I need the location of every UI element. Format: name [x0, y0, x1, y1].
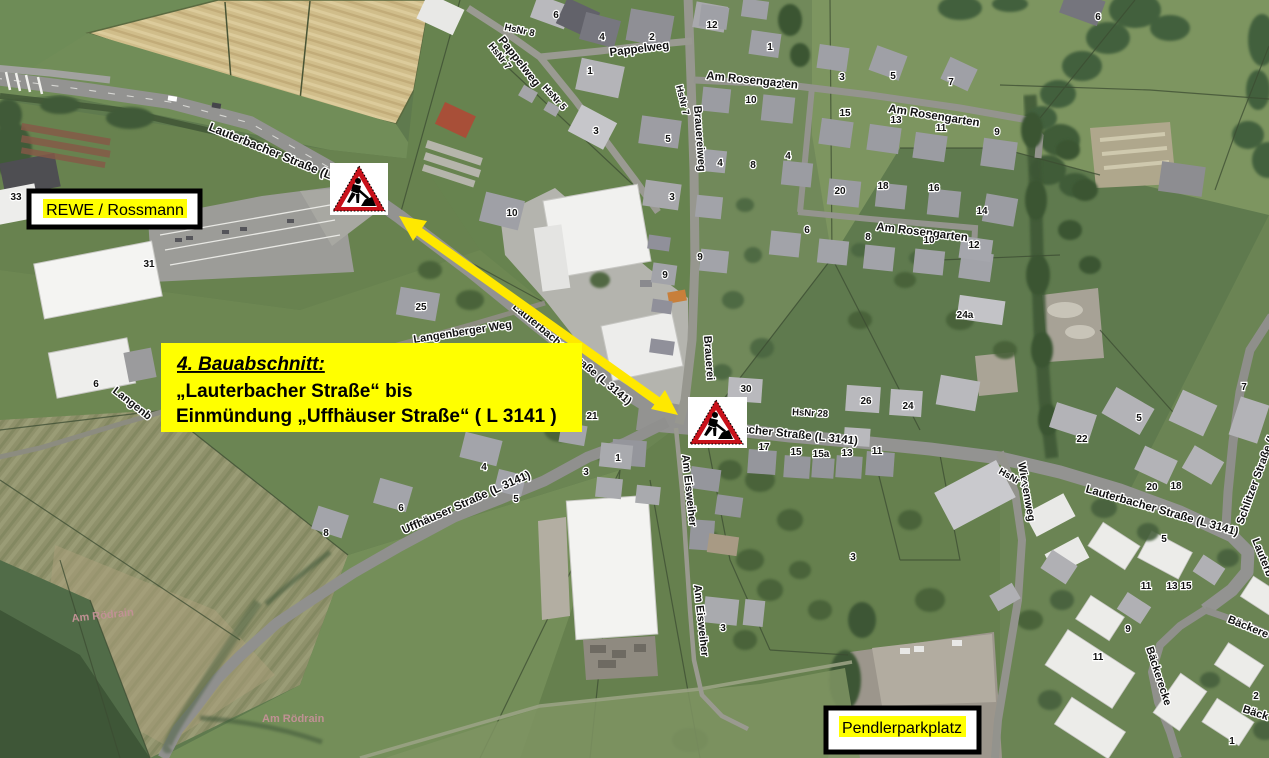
svg-text:17: 17 — [758, 442, 770, 453]
svg-text:24: 24 — [902, 401, 914, 412]
svg-text:18: 18 — [877, 181, 889, 192]
svg-text:REWE / Rossmann: REWE / Rossmann — [46, 202, 184, 219]
svg-text:13: 13 — [841, 448, 853, 459]
svg-text:15: 15 — [839, 108, 851, 119]
svg-text:11: 11 — [1141, 581, 1152, 592]
svg-text:„Lauterbacher Straße“ bis: „Lauterbacher Straße“ bis — [176, 381, 413, 402]
svg-text:16: 16 — [928, 183, 940, 194]
svg-text:9: 9 — [697, 252, 703, 263]
svg-text:22: 22 — [1076, 434, 1088, 445]
svg-text:13: 13 — [1166, 581, 1178, 592]
svg-text:6: 6 — [804, 225, 810, 236]
svg-text:1: 1 — [767, 42, 773, 53]
svg-text:30: 30 — [740, 384, 752, 395]
svg-text:33: 33 — [10, 192, 22, 203]
svg-text:2: 2 — [1253, 691, 1259, 702]
svg-text:6: 6 — [553, 10, 559, 21]
svg-text:21: 21 — [586, 411, 598, 422]
svg-text:20: 20 — [1146, 482, 1158, 493]
svg-text:2: 2 — [776, 80, 782, 91]
svg-text:10: 10 — [923, 235, 935, 246]
svg-text:Einmündung „Uffhäuser Straße“: Einmündung „Uffhäuser Straße“ ( L 3141 ) — [176, 406, 557, 427]
svg-text:5: 5 — [1136, 413, 1142, 424]
svg-text:3: 3 — [720, 623, 726, 634]
svg-text:25: 25 — [415, 302, 427, 313]
svg-text:Pendlerparkplatz: Pendlerparkplatz — [842, 720, 962, 737]
svg-text:1: 1 — [615, 453, 621, 464]
svg-text:10: 10 — [745, 95, 757, 106]
svg-text:HsNr 28: HsNr 28 — [792, 407, 828, 420]
svg-text:1: 1 — [587, 66, 593, 77]
svg-text:24a: 24a — [957, 310, 974, 321]
svg-text:2: 2 — [649, 32, 655, 43]
svg-text:7: 7 — [1241, 382, 1247, 393]
svg-text:8: 8 — [323, 528, 329, 539]
svg-text:3: 3 — [839, 72, 845, 83]
svg-text:Am Rödrain: Am Rödrain — [262, 713, 325, 725]
svg-text:5: 5 — [890, 71, 896, 82]
svg-text:4: 4 — [599, 32, 605, 43]
svg-text:31: 31 — [143, 259, 155, 270]
svg-text:1: 1 — [1229, 736, 1235, 747]
svg-text:15a: 15a — [813, 449, 830, 460]
svg-text:7: 7 — [948, 77, 954, 88]
svg-text:8: 8 — [865, 232, 871, 243]
svg-text:11: 11 — [936, 123, 947, 134]
svg-text:20: 20 — [834, 186, 846, 197]
svg-text:5: 5 — [513, 494, 519, 505]
svg-text:6: 6 — [1095, 12, 1101, 23]
svg-text:4: 4 — [717, 158, 723, 169]
svg-text:11: 11 — [872, 446, 883, 457]
svg-text:15: 15 — [790, 447, 802, 458]
svg-text:4: 4 — [785, 151, 791, 162]
svg-text:5: 5 — [1161, 534, 1167, 545]
svg-text:3: 3 — [593, 126, 599, 137]
svg-text:13: 13 — [890, 115, 902, 126]
svg-text:18: 18 — [1170, 481, 1182, 492]
svg-text:9: 9 — [994, 127, 1000, 138]
svg-text:4. Bauabschnitt:: 4. Bauabschnitt: — [176, 354, 325, 375]
svg-text:12: 12 — [968, 240, 980, 251]
svg-text:4: 4 — [481, 462, 487, 473]
svg-text:14: 14 — [976, 206, 988, 217]
svg-text:6: 6 — [93, 379, 99, 390]
svg-text:11: 11 — [1093, 652, 1104, 663]
svg-text:3: 3 — [669, 192, 675, 203]
svg-text:9: 9 — [1125, 624, 1131, 635]
svg-text:3: 3 — [583, 467, 589, 478]
svg-text:15: 15 — [1180, 581, 1192, 592]
svg-text:26: 26 — [860, 396, 872, 407]
svg-text:12: 12 — [706, 20, 718, 31]
svg-text:8: 8 — [750, 160, 756, 171]
svg-text:3: 3 — [850, 552, 856, 563]
svg-text:10: 10 — [506, 208, 518, 219]
svg-text:5: 5 — [665, 134, 671, 145]
svg-text:6: 6 — [398, 503, 404, 514]
svg-text:9: 9 — [662, 270, 668, 281]
